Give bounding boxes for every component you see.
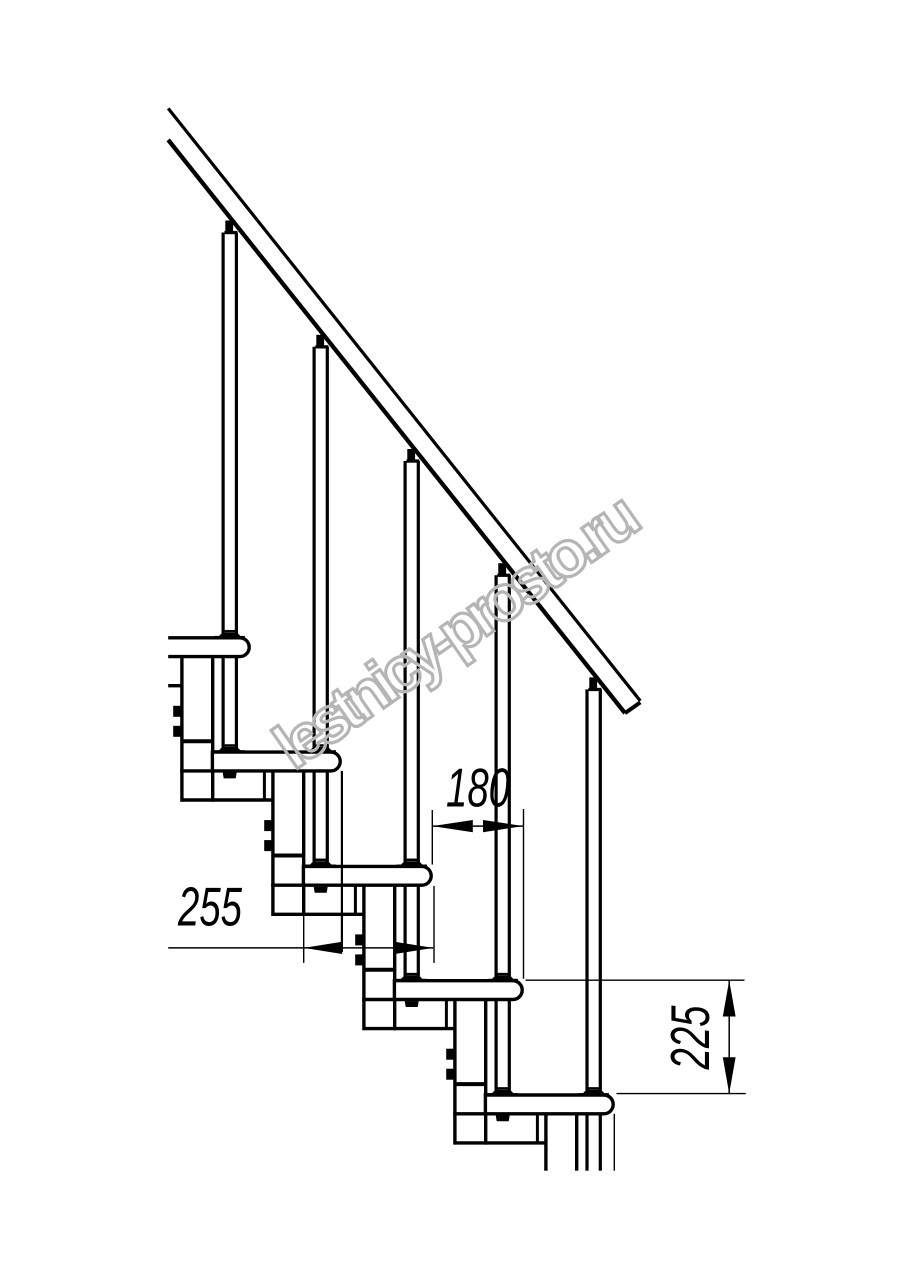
svg-text:180: 180 bbox=[446, 757, 510, 819]
svg-text:225: 225 bbox=[659, 1005, 721, 1070]
svg-text:255: 255 bbox=[177, 876, 242, 938]
